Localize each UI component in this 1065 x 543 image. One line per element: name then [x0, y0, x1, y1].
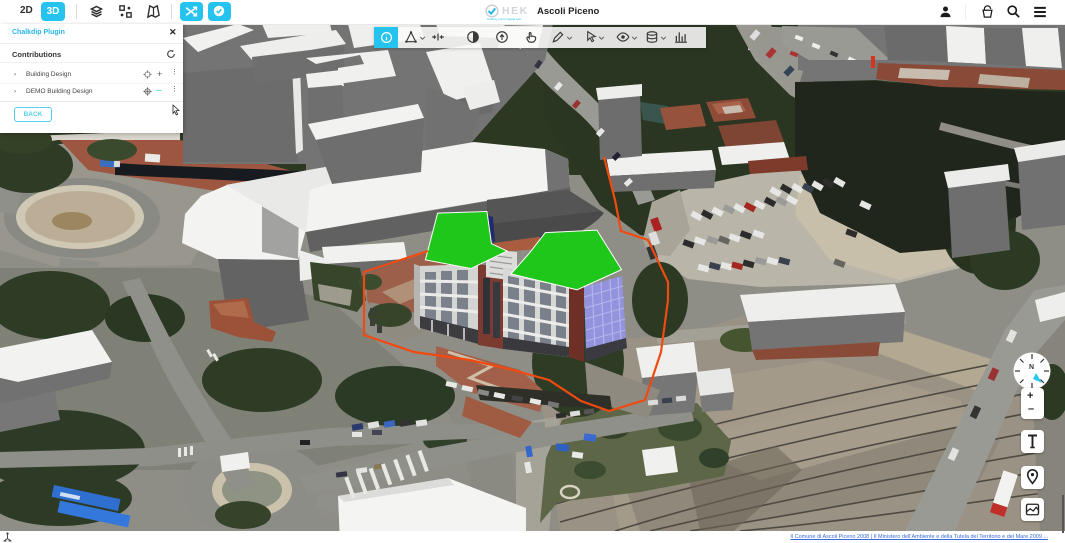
svg-text:N: N — [1029, 364, 1034, 371]
